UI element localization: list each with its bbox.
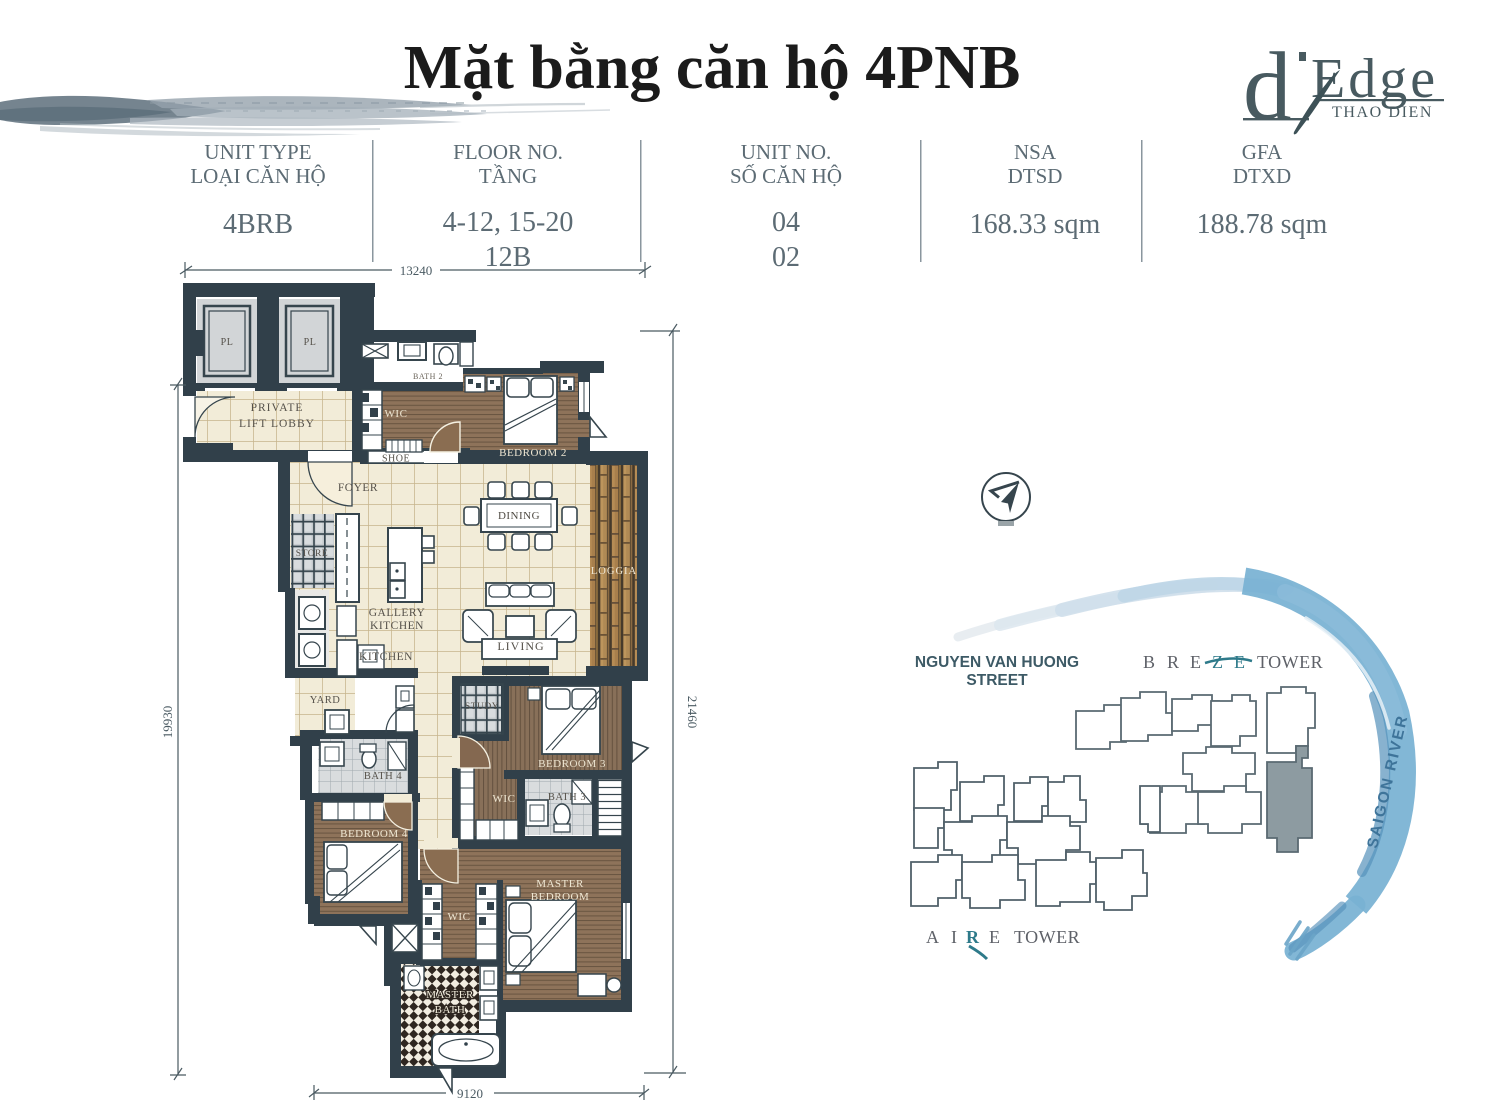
svg-text:I: I: [951, 927, 957, 947]
svg-text:PL: PL: [304, 337, 317, 348]
svg-text:UNIT TYPE: UNIT TYPE: [204, 140, 311, 164]
svg-text:04: 04: [772, 207, 800, 238]
svg-text:d: d: [1243, 33, 1292, 140]
svg-text:PL: PL: [221, 337, 234, 348]
svg-text:21460: 21460: [685, 696, 700, 729]
svg-text:TẦNG: TẦNG: [479, 164, 537, 188]
svg-text:LOẠI CĂN HỘ: LOẠI CĂN HỘ: [190, 164, 325, 188]
svg-text:9120: 9120: [457, 1086, 483, 1100]
svg-text:19930: 19930: [160, 706, 175, 739]
svg-text:E: E: [1234, 652, 1245, 672]
svg-text:BATH 3: BATH 3: [548, 792, 586, 803]
svg-text:TOWER: TOWER: [1257, 652, 1323, 672]
svg-text:DTSD: DTSD: [1008, 164, 1063, 188]
svg-text:BATH 4: BATH 4: [364, 771, 403, 782]
svg-text:LOGGIA: LOGGIA: [591, 566, 637, 577]
svg-text:NGUYEN VAN HUONG: NGUYEN VAN HUONG: [915, 654, 1079, 671]
svg-text:YARD: YARD: [310, 695, 341, 706]
svg-text:LIVING: LIVING: [497, 639, 544, 653]
svg-text:STREET: STREET: [966, 672, 1028, 689]
svg-text:E: E: [989, 927, 1000, 947]
svg-text:THAO DIEN: THAO DIEN: [1332, 104, 1433, 121]
svg-text:WIC: WIC: [448, 911, 471, 923]
svg-text:KITCHEN: KITCHEN: [370, 620, 424, 632]
svg-text:Z: Z: [1212, 652, 1223, 672]
svg-text:R: R: [966, 927, 980, 947]
svg-text:STUDY: STUDY: [465, 702, 499, 712]
svg-text:FLOOR NO.: FLOOR NO.: [453, 140, 563, 164]
svg-text:SỐ CĂN HỘ: SỐ CĂN HỘ: [730, 164, 842, 188]
svg-text:R: R: [1167, 652, 1179, 672]
svg-text:Mặt bằng căn hộ 4PNB: Mặt bằng căn hộ 4PNB: [404, 34, 1021, 102]
svg-text:BEDROOM 3: BEDROOM 3: [538, 758, 606, 770]
svg-text:A: A: [926, 927, 939, 947]
svg-text:02: 02: [772, 242, 800, 273]
svg-text:188.78 sqm: 188.78 sqm: [1197, 209, 1328, 240]
svg-text:UNIT NO.: UNIT NO.: [741, 140, 832, 164]
svg-text:WIC: WIC: [385, 408, 408, 420]
svg-text:GALLERY: GALLERY: [369, 607, 426, 619]
svg-text:BATH: BATH: [435, 1004, 466, 1016]
svg-text:BEDROOM: BEDROOM: [531, 891, 590, 903]
svg-text:4BRB: 4BRB: [223, 209, 293, 240]
svg-text:12B: 12B: [485, 242, 532, 273]
svg-text:MASTER: MASTER: [426, 989, 474, 1001]
svg-text:WIC: WIC: [493, 793, 516, 805]
svg-text:STORE: STORE: [296, 549, 328, 559]
svg-text:BEDROOM 2: BEDROOM 2: [499, 447, 567, 459]
svg-text:PRIVATE: PRIVATE: [251, 402, 304, 414]
svg-text:GFA: GFA: [1242, 140, 1283, 164]
svg-text:DTXD: DTXD: [1233, 164, 1291, 188]
svg-text:TOWER: TOWER: [1014, 927, 1080, 947]
svg-text:DINING: DINING: [498, 510, 540, 522]
svg-text:FOYER: FOYER: [338, 482, 378, 494]
svg-text:BEDROOM 4: BEDROOM 4: [340, 828, 408, 840]
svg-text:4-12, 15-20: 4-12, 15-20: [443, 207, 574, 238]
svg-text:SHOE: SHOE: [382, 454, 410, 465]
svg-text:168.33 sqm: 168.33 sqm: [970, 209, 1101, 240]
svg-text:KITCHEN: KITCHEN: [359, 651, 413, 663]
svg-text:LIFT LOBBY: LIFT LOBBY: [239, 418, 315, 430]
svg-text:NSA: NSA: [1014, 140, 1057, 164]
svg-text:13240: 13240: [400, 263, 433, 278]
svg-text:BATH 2: BATH 2: [413, 372, 443, 381]
svg-text:MASTER: MASTER: [536, 878, 584, 890]
svg-text:B: B: [1143, 652, 1155, 672]
svg-text:E: E: [1190, 652, 1201, 672]
